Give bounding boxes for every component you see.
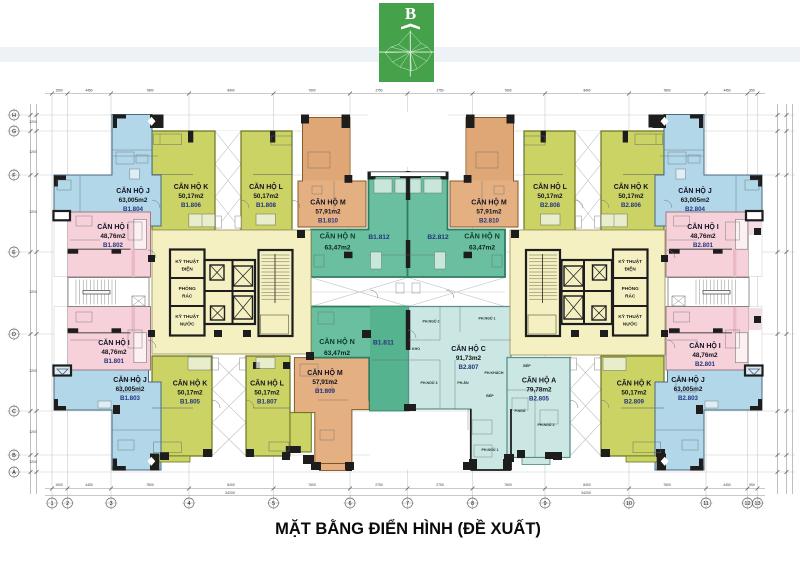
svg-text:PH.NGỦ 2: PH.NGỦ 2 xyxy=(538,422,555,427)
svg-text:3200: 3200 xyxy=(30,430,37,434)
svg-text:MẶT BẰNG ĐIỂN HÌNH (ĐỀ XUẤT): MẶT BẰNG ĐIỂN HÌNH (ĐỀ XUẤT) xyxy=(275,519,541,538)
svg-text:2750: 2750 xyxy=(375,483,383,487)
svg-text:CĂN HỘ K: CĂN HỘ K xyxy=(614,182,649,191)
svg-text:63,47m2: 63,47m2 xyxy=(469,245,495,252)
svg-text:63,005m2: 63,005m2 xyxy=(674,386,703,393)
svg-text:H: H xyxy=(12,113,16,119)
svg-text:PH.NGỦ 2: PH.NGỦ 2 xyxy=(423,319,440,324)
svg-text:B2.806: B2.806 xyxy=(621,202,642,209)
svg-text:9: 9 xyxy=(543,501,546,507)
svg-text:7600: 7600 xyxy=(308,89,315,93)
svg-text:CĂN HỘ L: CĂN HỘ L xyxy=(249,182,284,191)
svg-text:A: A xyxy=(12,470,16,476)
svg-text:F: F xyxy=(12,173,16,179)
svg-text:63,005m2: 63,005m2 xyxy=(116,386,145,393)
svg-text:KHO: KHO xyxy=(412,347,420,351)
svg-text:50,17m2: 50,17m2 xyxy=(177,390,203,397)
svg-text:5: 5 xyxy=(272,501,275,507)
svg-text:1500: 1500 xyxy=(55,89,62,93)
svg-text:48,76m2: 48,76m2 xyxy=(100,233,126,240)
svg-text:B2.801: B2.801 xyxy=(693,242,714,249)
svg-text:3200: 3200 xyxy=(30,290,37,294)
svg-text:2: 2 xyxy=(66,501,69,507)
svg-text:4450: 4450 xyxy=(723,483,731,487)
svg-text:B1.801: B1.801 xyxy=(104,358,125,365)
svg-text:34200: 34200 xyxy=(581,491,591,495)
svg-text:B1.802: B1.802 xyxy=(103,242,124,249)
svg-text:B2.812: B2.812 xyxy=(427,234,449,241)
svg-text:8400: 8400 xyxy=(583,89,590,93)
svg-text:PHÒNG: PHÒNG xyxy=(622,284,640,291)
svg-text:50,17m2: 50,17m2 xyxy=(253,193,279,200)
svg-text:50,17m2: 50,17m2 xyxy=(621,390,647,397)
svg-text:NƯỚC: NƯỚC xyxy=(180,320,195,327)
svg-text:63,47m2: 63,47m2 xyxy=(324,245,350,252)
svg-text:2750: 2750 xyxy=(436,89,443,93)
svg-text:2750: 2750 xyxy=(375,89,382,93)
svg-text:B: B xyxy=(12,453,16,459)
svg-text:63,005m2: 63,005m2 xyxy=(119,197,148,204)
svg-text:13: 13 xyxy=(754,501,760,507)
svg-text:8400: 8400 xyxy=(227,483,235,487)
svg-text:CĂN HỘ M: CĂN HỘ M xyxy=(471,198,507,207)
svg-text:ĐIỆN: ĐIỆN xyxy=(182,265,194,272)
svg-text:B1.806: B1.806 xyxy=(181,202,202,209)
svg-text:7800: 7800 xyxy=(146,89,153,93)
svg-text:8400: 8400 xyxy=(583,483,591,487)
svg-text:KỸ THUẬT: KỸ THUẬT xyxy=(618,313,642,319)
svg-text:B1.805: B1.805 xyxy=(180,399,201,406)
svg-text:48,76m2: 48,76m2 xyxy=(101,349,127,356)
svg-text:E: E xyxy=(12,250,16,256)
svg-text:D: D xyxy=(12,332,16,338)
svg-text:B: B xyxy=(405,4,416,23)
svg-text:50,17m2: 50,17m2 xyxy=(178,193,204,200)
svg-text:4450: 4450 xyxy=(85,89,92,93)
svg-text:B1.810: B1.810 xyxy=(318,218,339,225)
svg-text:7800: 7800 xyxy=(663,89,670,93)
svg-text:CĂN HỘ N: CĂN HỘ N xyxy=(319,337,355,346)
svg-text:48,76m2: 48,76m2 xyxy=(690,233,716,240)
svg-text:CĂN HỘ I: CĂN HỘ I xyxy=(689,341,721,350)
svg-text:CĂN HỘ I: CĂN HỘ I xyxy=(687,222,719,231)
svg-text:57,91m2: 57,91m2 xyxy=(476,209,502,216)
svg-text:B2.808: B2.808 xyxy=(540,202,561,209)
svg-text:7800: 7800 xyxy=(146,483,154,487)
svg-text:8400: 8400 xyxy=(227,89,234,93)
svg-text:10: 10 xyxy=(626,501,632,507)
svg-text:48,76m2: 48,76m2 xyxy=(692,352,718,359)
svg-text:BẾP: BẾP xyxy=(486,393,494,398)
svg-text:B2.801: B2.801 xyxy=(695,361,716,368)
svg-text:50,17m2: 50,17m2 xyxy=(618,193,644,200)
svg-text:KỸ THUẬT: KỸ THUẬT xyxy=(175,258,199,264)
svg-text:CĂN HỘ K: CĂN HỘ K xyxy=(173,379,208,388)
svg-text:B2.803: B2.803 xyxy=(678,395,699,402)
svg-text:950: 950 xyxy=(749,483,755,487)
svg-text:CĂN HỘ I: CĂN HỘ I xyxy=(97,222,129,231)
svg-text:PH.NGỦ 1: PH.NGỦ 1 xyxy=(479,316,496,321)
svg-text:7600: 7600 xyxy=(504,483,512,487)
svg-text:BẾP: BẾP xyxy=(523,363,531,368)
svg-text:4450: 4450 xyxy=(85,483,93,487)
svg-text:2750: 2750 xyxy=(436,483,444,487)
svg-text:7600: 7600 xyxy=(308,483,316,487)
svg-text:7800: 7800 xyxy=(663,483,671,487)
svg-text:CĂN HỘ K: CĂN HỘ K xyxy=(617,379,652,388)
svg-text:B1.812: B1.812 xyxy=(368,234,390,241)
svg-text:57,91m2: 57,91m2 xyxy=(312,379,338,386)
svg-text:B2.810: B2.810 xyxy=(479,218,500,225)
svg-text:950: 950 xyxy=(749,89,755,93)
svg-text:CĂN HỘ M: CĂN HỘ M xyxy=(310,198,346,207)
svg-text:B1.809: B1.809 xyxy=(315,388,336,395)
svg-text:CĂN HỘ L: CĂN HỘ L xyxy=(250,379,285,388)
svg-text:3200: 3200 xyxy=(30,460,37,464)
svg-text:91,73m2: 91,73m2 xyxy=(456,355,482,362)
svg-text:RÁC: RÁC xyxy=(182,293,193,299)
svg-text:12: 12 xyxy=(744,501,750,507)
svg-text:3200: 3200 xyxy=(30,369,37,373)
svg-text:57,91m2: 57,91m2 xyxy=(315,209,341,216)
svg-text:C: C xyxy=(12,409,16,415)
svg-text:B1.804: B1.804 xyxy=(123,206,144,213)
svg-text:PH.ĂN: PH.ĂN xyxy=(457,380,469,385)
svg-text:CĂN HỘ J: CĂN HỘ J xyxy=(113,375,147,384)
svg-text:PH.NGỦ 3: PH.NGỦ 3 xyxy=(421,380,438,385)
svg-text:1500: 1500 xyxy=(55,483,63,487)
svg-text:KỸ THUẬT: KỸ THUẬT xyxy=(618,258,642,264)
svg-text:4: 4 xyxy=(187,501,190,507)
svg-text:50,17m2: 50,17m2 xyxy=(254,390,280,397)
svg-text:8: 8 xyxy=(471,501,474,507)
svg-text:B2.805: B2.805 xyxy=(529,396,550,403)
svg-text:CĂN HỘ K: CĂN HỘ K xyxy=(174,182,209,191)
svg-text:50,17m2: 50,17m2 xyxy=(537,193,563,200)
svg-text:CĂN HỘ J: CĂN HỘ J xyxy=(116,186,150,195)
svg-text:CĂN HỘ N: CĂN HỘ N xyxy=(464,232,500,241)
svg-text:PH.NGỦ 1: PH.NGỦ 1 xyxy=(482,447,499,452)
svg-text:PHÒNG: PHÒNG xyxy=(179,284,197,291)
svg-text:3200: 3200 xyxy=(30,210,37,214)
svg-text:7: 7 xyxy=(406,501,409,507)
svg-text:B2.807: B2.807 xyxy=(459,364,480,371)
svg-text:4450: 4450 xyxy=(723,89,730,93)
svg-text:63,47m2: 63,47m2 xyxy=(324,350,350,357)
svg-text:B1.803: B1.803 xyxy=(120,395,141,402)
svg-text:CĂN HỘ A: CĂN HỘ A xyxy=(522,376,556,385)
svg-text:CĂN HỘ L: CĂN HỘ L xyxy=(533,182,568,191)
svg-text:CĂN HỘ I: CĂN HỘ I xyxy=(98,338,130,347)
svg-text:CĂN HỘ J: CĂN HỘ J xyxy=(671,375,705,384)
svg-text:P.NGỦ: P.NGỦ xyxy=(515,408,526,413)
svg-text:B1.811: B1.811 xyxy=(373,340,394,347)
svg-text:G: G xyxy=(12,129,16,135)
svg-text:11: 11 xyxy=(703,501,709,507)
svg-text:B2.804: B2.804 xyxy=(685,206,706,213)
svg-text:CĂN HỘ J: CĂN HỘ J xyxy=(678,186,712,195)
svg-text:63,005m2: 63,005m2 xyxy=(681,197,710,204)
svg-text:RÁC: RÁC xyxy=(625,293,636,299)
svg-text:CĂN HỘ N: CĂN HỘ N xyxy=(320,232,356,241)
svg-text:B2.809: B2.809 xyxy=(624,399,645,406)
svg-text:3200: 3200 xyxy=(30,120,37,124)
svg-text:ĐIỆN: ĐIỆN xyxy=(625,265,637,272)
svg-text:NƯỚC: NƯỚC xyxy=(623,320,638,327)
svg-text:79,78m2: 79,78m2 xyxy=(526,387,552,394)
svg-text:CĂN HỘ C: CĂN HỘ C xyxy=(451,344,486,353)
svg-text:CĂN HỘ M: CĂN HỘ M xyxy=(307,368,343,377)
svg-text:7600: 7600 xyxy=(504,89,511,93)
svg-text:1: 1 xyxy=(50,501,53,507)
svg-text:3200: 3200 xyxy=(30,150,37,154)
svg-text:3: 3 xyxy=(109,501,112,507)
svg-text:34200: 34200 xyxy=(225,491,235,495)
svg-text:KỸ THUẬT: KỸ THUẬT xyxy=(175,313,199,319)
svg-text:B1.808: B1.808 xyxy=(256,202,277,209)
svg-text:B1.807: B1.807 xyxy=(257,399,278,406)
svg-text:PH.KHÁCH: PH.KHÁCH xyxy=(485,370,504,375)
svg-text:6: 6 xyxy=(348,501,351,507)
